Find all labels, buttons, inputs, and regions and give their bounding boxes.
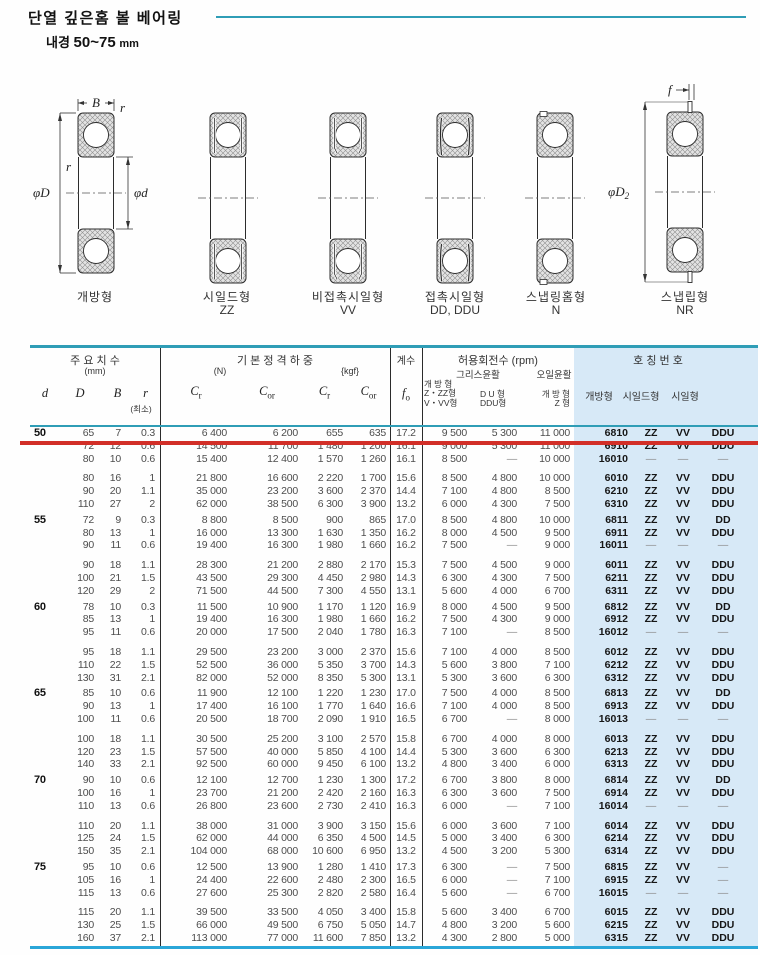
svg-text:B: B [92, 95, 100, 110]
page-title: 단열 깊은홈 볼 베어링 [28, 7, 183, 28]
header-cor-kgf: Cor [347, 384, 390, 401]
svg-text:φd: φd [134, 185, 148, 200]
table-row: 8513119 40016 3001 9801 66016.27 5004 30… [30, 613, 758, 626]
table-row: 100211.543 50029 3004 4502 98014.36 3004… [30, 572, 758, 585]
table-row: 125241.562 00044 0006 3504 50014.55 0003… [30, 832, 758, 845]
svg-text:f: f [668, 82, 674, 97]
table-bottom-rule [30, 946, 758, 949]
header-dims-unit: (mm) [30, 366, 160, 376]
table-row: 110201.138 00031 0003 9003 15015.66 0003… [30, 820, 758, 833]
table-row: 130312.182 00052 0008 3505 30013.15 3003… [30, 672, 758, 685]
table-row: 8016121 80016 6002 2201 70015.68 5004 80… [30, 472, 758, 485]
header-unit-n: (N) [180, 366, 260, 376]
header-cor-n: Cor [232, 384, 302, 401]
table-group-d75: 7595100.612 50013 9001 2801 41017.36 300… [30, 861, 758, 945]
header-cr-kgf: Cr [302, 384, 347, 401]
header-oil-col: 개 방 형Z 형 [526, 390, 570, 409]
catalog-page: { "page": { "title": "단열 깊은홈 볼 베어링", "su… [0, 0, 760, 955]
table-row: 90181.128 30021 2002 8802 17015.37 5004 … [30, 559, 758, 572]
svg-text:r: r [120, 100, 126, 115]
header-unit-kgf: {kgf} [310, 366, 390, 376]
header-cr-n: Cr [160, 384, 232, 401]
bearing-diagram-open-icon: B φD φd r r [30, 95, 170, 291]
dia-code-nr: NR [635, 303, 735, 317]
table-row: 90110.619 40016 3001 9801 66016.27 500—9… [30, 539, 758, 552]
table-row: 115130.627 60025 3002 8202 58016.45 600—… [30, 887, 758, 900]
bearing-diagram-vv-icon [313, 108, 383, 288]
dia-label-open: 개방형 [45, 288, 145, 305]
header-fo: fo [390, 386, 422, 403]
table-row: 10516124 40022 6002 4802 30016.56 000—7 … [30, 874, 758, 887]
table-row: 120231.557 50040 0005 8504 10014.45 3003… [30, 746, 758, 759]
table-row: 95181.129 50023 2003 0002 37015.67 1004 … [30, 646, 758, 659]
table-row: 7595100.612 50013 9001 2801 41017.36 300… [30, 861, 758, 874]
header-grease-col1: 개 방 형Z・ZZ형V・VV형 [424, 380, 476, 409]
bearing-diagram-nr-icon: f φD2 [600, 78, 755, 292]
table-row: 110130.626 80023 6002 7302 41016.36 000—… [30, 800, 758, 813]
header-col-B: B [100, 386, 135, 401]
table-group-d65: 6585100.611 90012 1001 2201 23017.07 500… [30, 687, 758, 771]
table-row: 80100.615 40012 4001 5701 26016.18 500—1… [30, 453, 758, 466]
table-group-d50: 506570.36 4006 20065563517.29 5005 30011… [30, 427, 758, 511]
table-group-d70: 7090100.612 10012 7001 2301 30017.26 700… [30, 774, 758, 858]
bearing-diagram-zz-icon [193, 108, 263, 288]
header-col-D: D [60, 386, 100, 401]
table-row: 140332.192 50060 0009 4506 10013.24 8003… [30, 758, 758, 771]
dia-code-zz: ZZ [177, 303, 277, 317]
table-row: 150352.1104 00068 00010 6006 95013.24 50… [30, 845, 758, 858]
header-part-title: 호 칭 번 호 [574, 352, 742, 368]
table-header: 주 요 치 수 (mm) d D B r (최소) 기 본 정 격 하 중 (N… [30, 348, 758, 426]
dia-code-dd: DD, DDU [402, 303, 508, 317]
subtitle-range: 50~75 [74, 34, 116, 51]
svg-text:φD: φD [33, 185, 50, 200]
page-subtitle: 내경 50~75 mm [46, 32, 139, 51]
header-col-r: r [133, 386, 158, 401]
table-row: 506570.36 4006 20065563517.29 5005 30011… [30, 427, 758, 440]
table-row: 9013117 40016 1001 7701 64016.67 1004 00… [30, 700, 758, 713]
table-row: 557290.38 8008 50090086517.08 5004 80010… [30, 514, 758, 527]
header-part-seal: 시일형 [660, 388, 710, 403]
subtitle-unit: mm [119, 38, 139, 50]
svg-text:r: r [66, 159, 72, 174]
table-row: 115201.139 50033 5004 0503 40015.85 6003… [30, 906, 758, 919]
bearing-diagram-n-icon [520, 108, 590, 288]
dia-code-vv: VV [295, 303, 401, 317]
red-marker-line [20, 441, 758, 445]
table-row: 130251.566 00049 5006 7505 05014.74 8003… [30, 919, 758, 932]
table-row: 11027262 00038 5006 3003 90013.26 0004 3… [30, 498, 758, 511]
table-row: 6585100.611 90012 1001 2201 23017.07 500… [30, 687, 758, 700]
header-col-r-min: (최소) [122, 403, 160, 415]
table-row: 100110.620 50018 7002 0901 91016.56 700—… [30, 713, 758, 726]
table-group-d60: 6078100.311 50010 9001 1701 12016.98 000… [30, 601, 758, 685]
dia-code-n: N [503, 303, 609, 317]
header-factor-title: 계수 [390, 352, 422, 367]
table-row: 100181.130 50025 2003 1002 57015.86 7004… [30, 733, 758, 746]
header-speed-title: 허용회전수 (rpm) [422, 352, 574, 368]
header-part-shield: 시일드형 [616, 388, 666, 403]
table-row: 95110.620 00017 5002 0401 78016.37 100—8… [30, 626, 758, 639]
table-group-d55: 557290.38 8008 50090086517.08 5004 80010… [30, 514, 758, 598]
header-col-d: d [30, 386, 60, 401]
header-grease-col2: D U 형DDU형 [480, 390, 528, 409]
table-row: 10016123 70021 2002 4202 16016.36 3003 6… [30, 787, 758, 800]
table-row: 90201.135 00023 2003 6002 37014.47 1004 … [30, 485, 758, 498]
table-row: 8013116 00013 3001 6301 35016.28 0004 50… [30, 527, 758, 540]
subtitle-label: 내경 [46, 35, 70, 50]
table-row: 160372.1113 00077 00011 6007 85013.24 30… [30, 932, 758, 945]
table-row: 6078100.311 50010 9001 1701 12016.98 000… [30, 601, 758, 614]
table-row: 12029271 50044 5007 3004 55013.15 6004 0… [30, 585, 758, 598]
table-row: 7090100.612 10012 7001 2301 30017.26 700… [30, 774, 758, 787]
bearing-diagram-dd-icon [420, 108, 490, 288]
title-rule [216, 16, 746, 18]
svg-text:φD2: φD2 [608, 184, 630, 201]
table-body: 506570.36 4006 20065563517.29 5005 30011… [30, 427, 758, 948]
header-oil: 오일윤활 [528, 367, 580, 381]
table-row: 110221.552 50036 0005 3503 70014.35 6003… [30, 659, 758, 672]
